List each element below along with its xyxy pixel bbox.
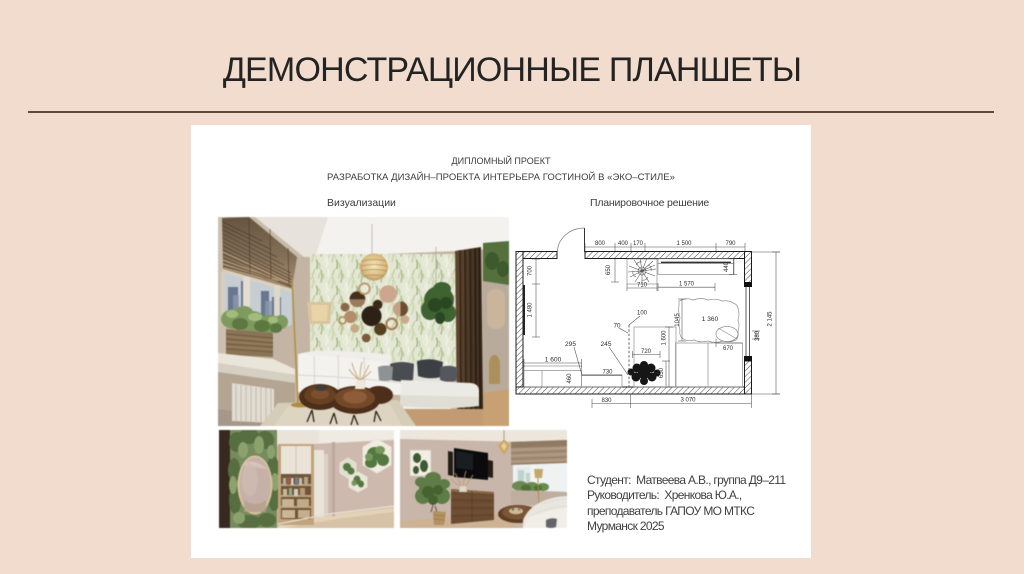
svg-text:245: 245 bbox=[600, 341, 611, 348]
svg-text:1 600: 1 600 bbox=[545, 357, 562, 364]
svg-text:730: 730 bbox=[602, 370, 613, 376]
svg-text:170: 170 bbox=[633, 241, 644, 247]
svg-text:1045: 1045 bbox=[675, 313, 681, 327]
svg-text:1 360: 1 360 bbox=[702, 316, 719, 323]
svg-text:295: 295 bbox=[565, 341, 576, 348]
svg-text:1 500: 1 500 bbox=[676, 241, 692, 247]
svg-text:710: 710 bbox=[637, 283, 648, 289]
svg-text:1 600: 1 600 bbox=[662, 330, 668, 346]
svg-text:2 145: 2 145 bbox=[768, 311, 774, 327]
svg-text:700: 700 bbox=[528, 265, 534, 276]
svg-text:3 070: 3 070 bbox=[680, 398, 696, 404]
svg-text:670: 670 bbox=[723, 346, 734, 352]
svg-text:100: 100 bbox=[637, 311, 648, 317]
svg-text:790: 790 bbox=[725, 241, 736, 247]
svg-text:440: 440 bbox=[724, 261, 730, 272]
svg-text:1 570: 1 570 bbox=[679, 282, 695, 288]
svg-text:380: 380 bbox=[755, 330, 761, 341]
svg-text:800: 800 bbox=[595, 241, 606, 247]
svg-text:830: 830 bbox=[601, 398, 612, 404]
svg-text:720: 720 bbox=[641, 349, 652, 355]
svg-text:650: 650 bbox=[606, 264, 612, 275]
svg-text:1 480: 1 480 bbox=[528, 302, 534, 318]
svg-text:70: 70 bbox=[613, 323, 621, 330]
svg-text:400: 400 bbox=[618, 241, 629, 247]
svg-text:460: 460 bbox=[567, 373, 573, 384]
svg-text:650: 650 bbox=[659, 367, 665, 378]
